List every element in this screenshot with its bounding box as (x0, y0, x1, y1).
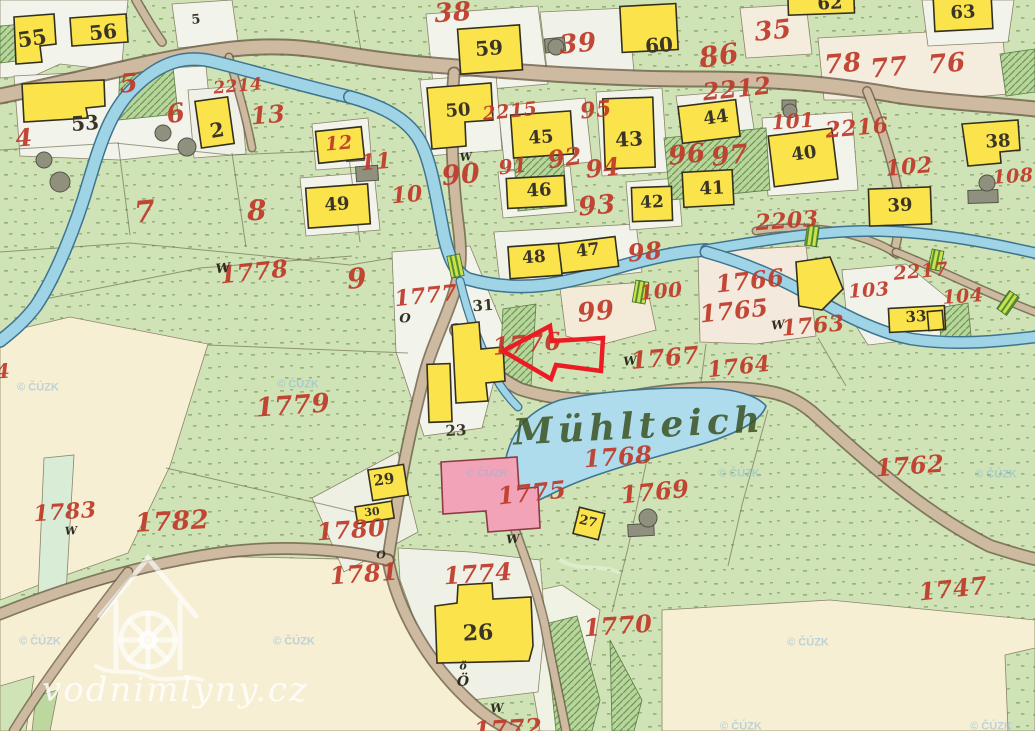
parcel-number-red: 103 (848, 280, 890, 302)
parcel-number-red: 77 (869, 53, 908, 82)
parcel-number-red: 9 (346, 264, 368, 294)
building-number: 27 (578, 514, 599, 531)
building-number: 60 (644, 34, 673, 56)
building-number: 2 (208, 119, 225, 141)
landuse-symbol: ö (459, 661, 466, 672)
parcel-number-red: 90 (441, 160, 482, 190)
parcel-number-red: 1775 (497, 477, 568, 508)
parcel-number-red: 1779 (255, 390, 331, 421)
parcel-number-red: 102 (884, 154, 933, 180)
landuse-symbol: W (771, 318, 786, 331)
building-number: 46 (526, 181, 552, 200)
parcel-number-red: 2214 (213, 76, 264, 97)
building-number: 56 (88, 21, 118, 44)
parcel-number-red: 1767 (630, 343, 701, 373)
building-number: 53 (70, 112, 99, 134)
landuse-symbol: W (64, 525, 77, 537)
building-number: 38 (985, 132, 1011, 151)
building-number: 42 (640, 194, 665, 212)
parcel-number-red: 4 (14, 125, 33, 150)
parcel-number-red: 1780 (316, 516, 386, 545)
copyright-watermark: © ČÚZK (273, 637, 315, 648)
parcel-number-red: 10 (390, 183, 423, 208)
parcel-number-red: 1781 (329, 560, 399, 589)
parcel-number-red: 1774 (443, 560, 513, 589)
copyright-watermark: © ČÚZK (277, 380, 319, 391)
parcel-number-red: 1783 (33, 499, 98, 525)
copyright-watermark: © ČÚZK (19, 637, 61, 648)
building-number: 63 (950, 3, 976, 22)
building-number: 39 (887, 196, 913, 215)
parcel-number-red: 2203 (755, 208, 820, 234)
parcel-number-red: 94 (585, 154, 622, 181)
landuse-symbol: W (459, 151, 472, 163)
cadastral-map: 3839358678777622125221413612111047892215… (0, 0, 1035, 731)
parcel-number-red: 2216 (825, 114, 890, 141)
copyright-watermark: © ČÚZK (975, 470, 1017, 481)
building-number: 26 (462, 621, 494, 645)
parcel-number-red: 1777 (393, 282, 458, 310)
copyright-watermark: © ČÚZK (718, 469, 760, 480)
parcel-number-red: 35 (753, 16, 793, 46)
parcel-number-red: 1763 (781, 312, 846, 339)
site-watermark: vodnimlyny.cz (42, 670, 309, 710)
parcel-number-red: 1766 (715, 265, 786, 296)
building-number: 55 (16, 26, 48, 51)
landuse-symbol: O (399, 313, 410, 326)
parcel-number-red: 12 (324, 133, 353, 154)
landuse-symbol: W (623, 354, 638, 367)
landuse-symbol: W (215, 262, 231, 276)
building-number: 48 (522, 249, 547, 268)
landuse-symbol: W (506, 533, 520, 546)
building-number: 50 (445, 101, 471, 121)
building-number: 29 (373, 471, 396, 489)
building-number: 47 (575, 241, 601, 261)
parcel-number-red: 98 (627, 238, 664, 265)
parcel-number-red: 2212 (702, 73, 773, 104)
parcel-number-red: 1764 (706, 353, 771, 381)
parcel-number-red: 2215 (482, 100, 539, 125)
copyright-watermark: © ČÚZK (787, 638, 829, 649)
building-number: 44 (702, 107, 729, 128)
parcel-number-red: 1776 (492, 329, 563, 359)
copyright-watermark: © ČÚZK (466, 469, 508, 480)
landuse-symbol: W (490, 702, 504, 715)
parcel-number-red: 13 (250, 102, 286, 129)
parcel-number-red: 4 (0, 361, 11, 382)
building-number: 33 (905, 309, 927, 325)
parcel-number-red: 8 (246, 196, 267, 225)
parcel-number-red: 1770 (583, 612, 653, 641)
parcel-number-red: 86 (697, 39, 740, 72)
parcel-number-red: 1782 (134, 507, 210, 537)
building-number: 43 (615, 128, 644, 149)
parcel-number-red: 2217 (893, 260, 949, 284)
map-label-layer: 3839358678777622125221413612111047892215… (0, 0, 1035, 731)
parcel-number-red: 91 (498, 155, 529, 178)
parcel-number-red: 108 (992, 166, 1034, 188)
building-number: 49 (324, 195, 350, 215)
parcel-number-red: 76 (927, 49, 966, 78)
landuse-symbol: O (376, 550, 386, 561)
parcel-number-red: 93 (577, 191, 616, 220)
building-number: 40 (790, 143, 817, 164)
parcel-number-red: 1765 (699, 295, 770, 326)
parcel-number-red: 104 (942, 286, 984, 308)
landuse-symbol: Ö (457, 675, 469, 689)
building-number: 45 (528, 128, 554, 148)
parcel-number-red: 38 (434, 0, 473, 27)
copyright-watermark: © ČÚZK (970, 722, 1012, 731)
building-number: 30 (364, 506, 380, 519)
parcel-number-red: 39 (558, 29, 597, 58)
copyright-watermark: © ČÚZK (17, 383, 59, 394)
parcel-number-red: 11 (359, 150, 392, 175)
waterbody-label: Mühlteich (512, 401, 766, 450)
building-number: 41 (699, 179, 725, 198)
parcel-number-red: 100 (639, 279, 684, 303)
parcel-number-red: 6 (165, 100, 187, 128)
parcel-number-red: 96 (667, 140, 707, 170)
parcel-number-red: 92 (546, 144, 583, 173)
parcel-number-red: 1762 (875, 452, 945, 481)
parcel-number-red: 97 (710, 141, 750, 171)
parcel-number-red: 5 (119, 70, 140, 98)
parcel-number-red: 1772 (473, 715, 543, 731)
parcel-number-red: 1747 (918, 573, 989, 604)
parcel-number-red: 95 (579, 97, 613, 122)
building-number: 31 (472, 298, 494, 314)
copyright-watermark: © ČÚZK (720, 722, 762, 731)
parcel-number-red: 7 (133, 197, 157, 229)
parcel-number-red: 99 (576, 297, 616, 327)
parcel-number-red: 101 (771, 110, 816, 133)
parcel-number-red: 1769 (620, 476, 691, 507)
building-number: 59 (474, 37, 503, 59)
parcel-number-red: 78 (823, 49, 862, 78)
building-number: 23 (445, 423, 467, 439)
building-number: 62 (817, 0, 843, 14)
building-number: 5 (191, 13, 201, 27)
